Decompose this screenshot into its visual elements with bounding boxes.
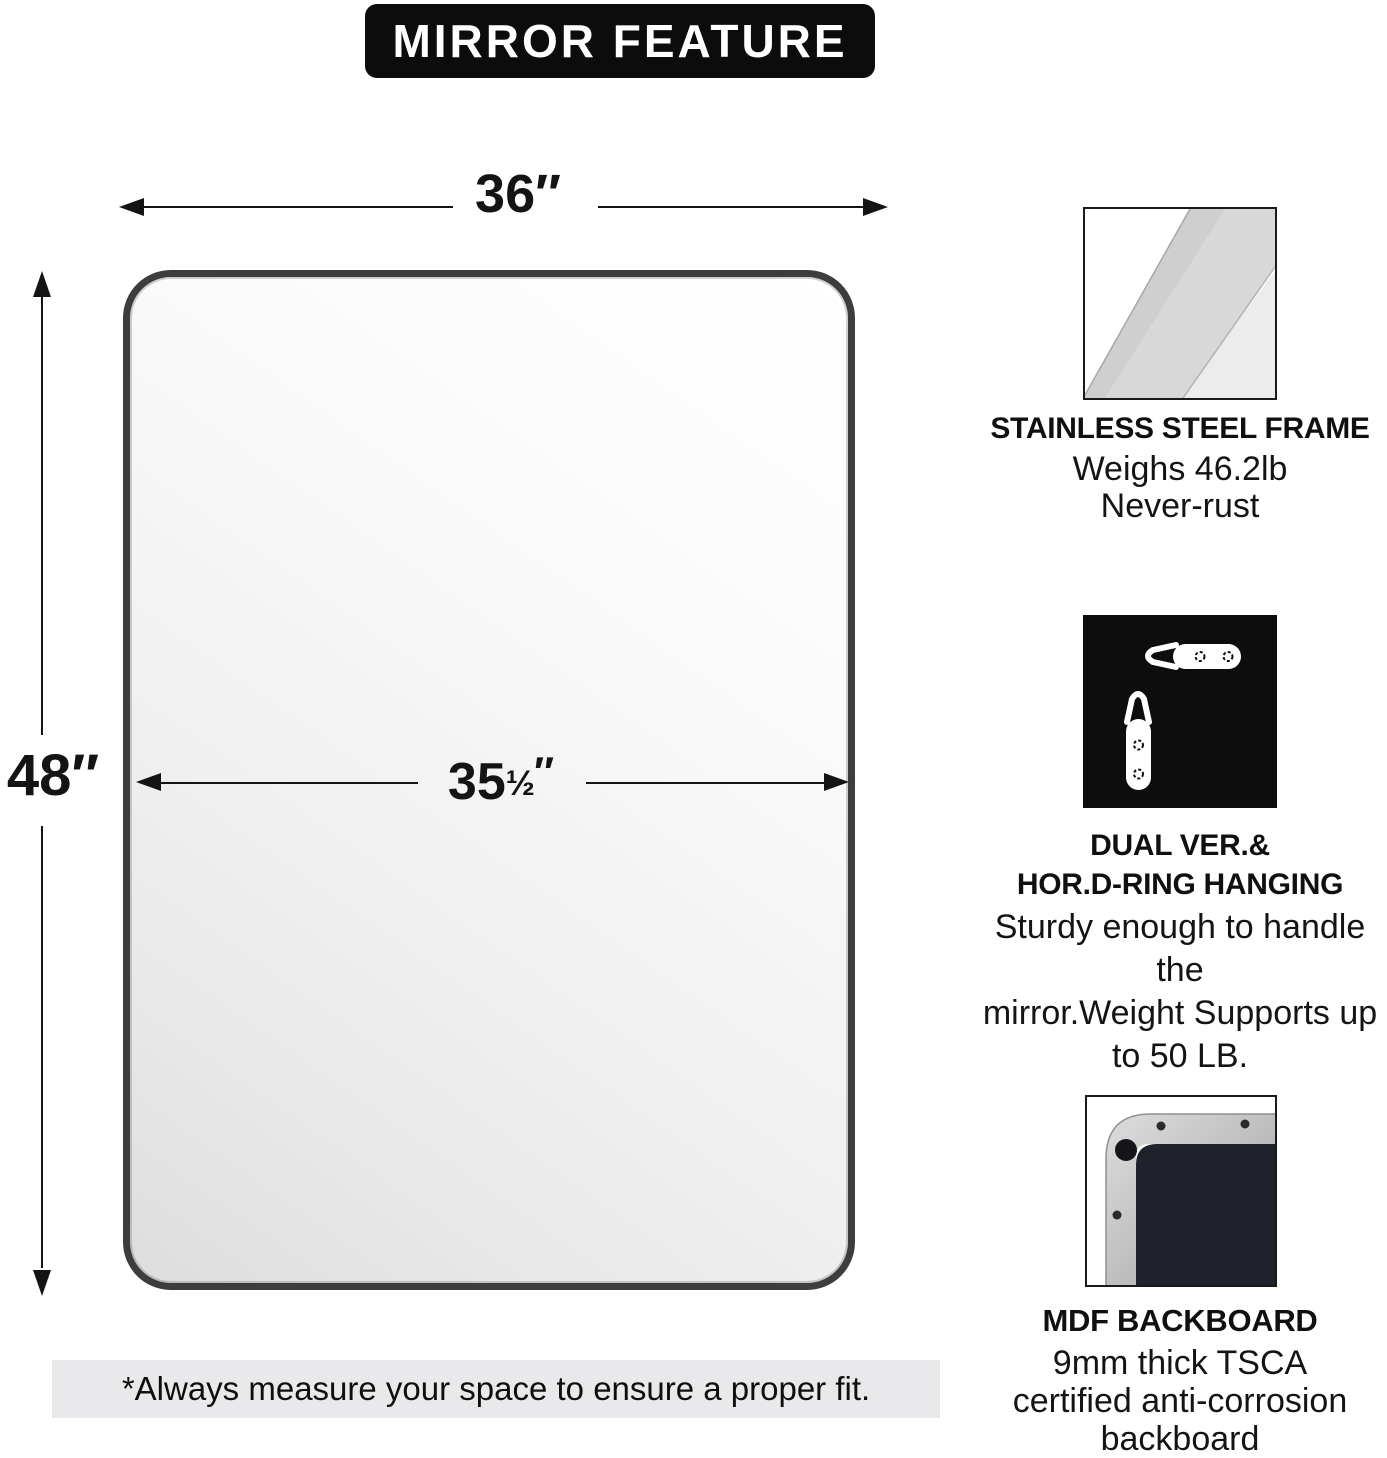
inner-width-prime: ″	[534, 748, 554, 795]
inner-width-fraction: ½	[506, 764, 534, 803]
arrowhead-left-icon	[119, 198, 144, 216]
inner-width-number: 35	[448, 753, 506, 811]
dimension-line	[586, 782, 824, 784]
feature-title: STAINLESS STEEL FRAME	[973, 409, 1387, 448]
dimension-line	[143, 206, 453, 208]
measure-note-text: *Always measure your space to ensure a p…	[122, 1370, 870, 1408]
arrowhead-left-icon	[136, 773, 161, 791]
page-title: MIRROR FEATURE	[392, 14, 847, 68]
arrowhead-up-icon	[33, 271, 51, 297]
d-ring-hanging-image	[1083, 615, 1277, 808]
height-dimension-label: 48″	[0, 742, 108, 809]
d-ring-hangers-icon	[1083, 615, 1277, 808]
steel-frame-photo	[1083, 207, 1277, 400]
arrowhead-down-icon	[33, 1270, 51, 1296]
arrowhead-right-icon	[824, 773, 849, 791]
backboard-corner-icon	[1087, 1097, 1275, 1285]
dimension-line	[598, 206, 863, 208]
measure-note-bar: *Always measure your space to ensure a p…	[52, 1360, 940, 1418]
backboard-photo	[1085, 1095, 1277, 1287]
steel-frame-swatch-icon	[1085, 209, 1275, 398]
mirror-feature-infographic: MIRROR FEATURE 36″ 48″ 35½″ *Always meas…	[0, 0, 1387, 1458]
dimension-line	[41, 826, 43, 1268]
feature-description: Sturdy enough to handle the mirror.Weigh…	[973, 906, 1387, 1078]
inner-width-dimension-label: 35½″	[412, 748, 590, 812]
feature-description: Weighs 46.2lb Never-rust	[973, 451, 1387, 525]
title-banner: MIRROR FEATURE	[365, 4, 875, 78]
arrowhead-right-icon	[863, 198, 888, 216]
width-dimension-label: 36″	[438, 163, 598, 225]
dimension-line	[41, 297, 43, 735]
dimension-line	[160, 782, 418, 784]
feature-title: MDF BACKBOARD	[973, 1301, 1387, 1340]
feature-title: DUAL VER.& HOR.D-RING HANGING	[973, 826, 1387, 904]
feature-description: 9mm thick TSCA certified anti-corrosion …	[973, 1344, 1387, 1458]
